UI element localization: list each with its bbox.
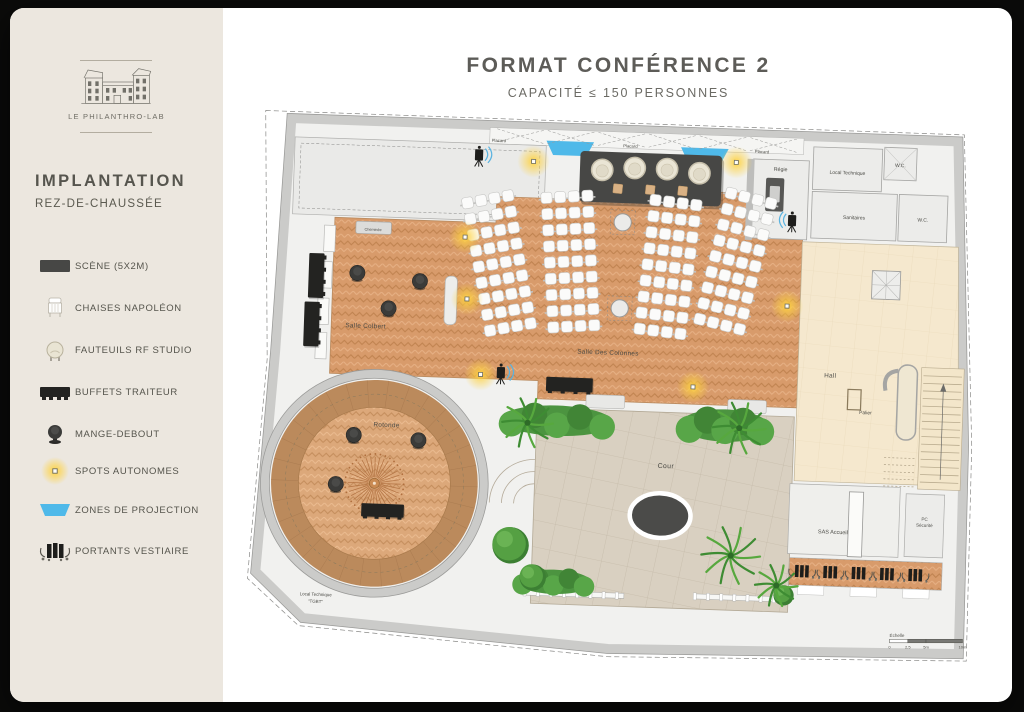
napoleon-chair: [569, 207, 581, 219]
sas-counter: [847, 492, 863, 557]
napoleon-chair: [709, 250, 723, 264]
napoleon-chair: [752, 244, 766, 258]
label-tgbt-2: "TGBT": [308, 599, 324, 605]
napoleon-chair: [665, 294, 677, 306]
napoleon-chair: [507, 221, 520, 234]
napoleon-chair: [585, 255, 597, 267]
napoleon-chair: [710, 300, 724, 314]
napoleon-chair: [720, 202, 734, 216]
napoleon-chair: [701, 281, 715, 295]
napoleon-chair-icon: [35, 294, 75, 322]
napoleon-chair: [489, 274, 502, 287]
napoleon-chair: [588, 303, 600, 315]
napoleon-chair: [693, 312, 707, 326]
napoleon-chair: [472, 260, 485, 273]
legend-item-chaises: CHAISES NAPOLÉON: [35, 294, 220, 322]
napoleon-chair: [724, 187, 738, 201]
napoleon-chair: [571, 239, 583, 251]
napoleon-chair: [651, 292, 663, 304]
napoleon-chair: [649, 194, 661, 206]
logo-building: [76, 64, 156, 108]
napoleon-chair: [645, 226, 657, 238]
napoleon-chair: [684, 247, 696, 259]
napoleon-chair: [745, 275, 759, 289]
napoleon-chair: [706, 316, 720, 330]
threshold: [586, 394, 625, 409]
napoleon-chair: [483, 242, 496, 255]
napoleon-chair: [546, 289, 558, 301]
legend-label: CHAISES NAPOLÉON: [75, 303, 182, 314]
napoleon-chair: [558, 256, 570, 268]
napoleon-chair: [488, 192, 501, 205]
napoleon-chair: [557, 240, 569, 252]
napoleon-chair: [705, 265, 719, 279]
napoleon-chair: [730, 221, 744, 235]
napoleon-chair: [676, 197, 688, 209]
napoleon-chair: [544, 257, 556, 269]
napoleon-chair: [571, 255, 583, 267]
napoleon-chair: [647, 324, 659, 336]
label-rotonde: Rotonde: [373, 421, 400, 429]
napoleon-chair: [545, 273, 557, 285]
napoleon-chair: [726, 237, 740, 251]
napoleon-chair: [653, 276, 665, 288]
legend-item-spots: SPOTS AUTONOMES: [35, 457, 220, 485]
stage-table: [645, 185, 655, 195]
napoleon-chair: [568, 191, 580, 203]
napoleon-chair: [735, 256, 749, 270]
napoleon-chair: [739, 240, 753, 254]
napoleon-chair: [714, 284, 728, 298]
label-wc-1: W.C.: [895, 163, 906, 169]
napoleon-chair: [588, 319, 600, 331]
napoleon-chair: [586, 271, 598, 283]
napoleon-chair: [475, 194, 488, 207]
label-sas-accueil: SAS Accueil: [818, 529, 848, 536]
napoleon-chair: [722, 253, 736, 267]
napoleon-chair: [491, 208, 504, 221]
napoleon-chair: [502, 271, 515, 284]
plan-title: FORMAT CONFÉRENCE 2: [223, 54, 1012, 78]
label-salle-colbert: Salle Colbert: [345, 322, 386, 330]
napoleon-chair: [547, 322, 559, 334]
napoleon-chair: [655, 260, 667, 272]
napoleon-chair: [661, 212, 673, 224]
plan-capacity: CAPACITÉ ≤ 150 PERSONNES: [223, 86, 1012, 100]
napoleon-chair: [663, 196, 675, 208]
napoleon-chair: [688, 215, 700, 227]
napoleon-chair: [484, 324, 497, 337]
label-cheminee: Cheminée: [364, 228, 381, 233]
label-placard-1: Placard: [492, 138, 507, 144]
napoleon-chair: [582, 206, 594, 218]
napoleon-chair: [494, 306, 507, 319]
studio-armchair: [591, 159, 613, 181]
legend-item-scene: SCÈNE (5X2M): [35, 252, 220, 280]
napoleon-chair: [543, 241, 555, 253]
napoleon-chair: [690, 199, 702, 211]
legend-item-portants: PORTANTS VESTIAIRE: [35, 537, 220, 565]
divider: [80, 132, 152, 133]
napoleon-chair: [749, 259, 763, 273]
napoleon-chair: [572, 272, 584, 284]
napoleon-chair: [513, 253, 526, 266]
napoleon-chair: [682, 263, 694, 275]
buffet-table: [308, 253, 327, 300]
scale-label: Échelle: [890, 632, 905, 638]
napoleon-chair: [747, 209, 761, 223]
napoleon-chair: [480, 226, 493, 239]
napoleon-chair: [554, 191, 566, 203]
label-sanitaires: Sanitaires: [843, 215, 866, 222]
cour-oval: [629, 492, 691, 539]
napoleon-chair: [555, 207, 567, 219]
napoleon-chair: [737, 307, 751, 321]
legend-item-buffets: BUFFETS TRAITEUR: [35, 378, 220, 406]
napoleon-chair: [461, 196, 474, 209]
legend-item-fauteuils: FAUTEUILS RF STUDIO: [35, 336, 220, 364]
napoleon-chair: [491, 290, 504, 303]
napoleon-chair: [674, 328, 686, 340]
napoleon-chair: [659, 228, 671, 240]
building: Salle Colbert Salle Des Colonnes Rotonde…: [245, 110, 985, 669]
napoleon-chair: [556, 224, 568, 236]
label-wc-2: W.C.: [917, 217, 928, 223]
napoleon-chair: [481, 308, 494, 321]
napoleon-chair: [649, 308, 661, 320]
napoleon-chair: [741, 291, 755, 305]
room-sas-accueil: [788, 484, 901, 558]
napoleon-chair: [521, 301, 534, 314]
label-pc-1: PC: [921, 517, 928, 522]
stair-rail: [896, 365, 918, 441]
napoleon-chair: [734, 206, 748, 220]
napoleon-chair: [635, 307, 647, 319]
napoleon-chair: [727, 288, 741, 302]
napoleon-chair: [723, 303, 737, 317]
buffet-icon: [35, 378, 75, 406]
scale-tick-1: 2,5: [905, 644, 911, 649]
napoleon-chair: [639, 274, 651, 286]
legend-label: BUFFETS TRAITEUR: [75, 387, 178, 398]
napoleon-chair: [516, 269, 529, 282]
napoleon-chair: [499, 256, 512, 269]
studio-armchair: [624, 157, 646, 179]
napoleon-chair: [731, 272, 745, 286]
napoleon-chair: [667, 278, 679, 290]
napoleon-chair: [575, 320, 587, 332]
page-title: IMPLANTATION: [35, 172, 186, 191]
label-cour: Cour: [657, 463, 674, 471]
napoleon-chair: [518, 285, 531, 298]
divider: [80, 60, 152, 61]
napoleon-chair: [524, 317, 537, 330]
spot-icon: [35, 457, 75, 485]
napoleon-chair: [494, 224, 507, 237]
napoleon-chair: [751, 193, 765, 207]
standing-table-icon: [35, 420, 75, 448]
napoleon-chair: [570, 223, 582, 235]
napoleon-chair: [669, 262, 681, 274]
napoleon-chair: [633, 323, 645, 335]
napoleon-chair: [733, 322, 747, 336]
napoleon-chair: [510, 237, 523, 250]
napoleon-chair: [678, 295, 690, 307]
napoleon-chair: [504, 205, 517, 218]
napoleon-chair: [764, 197, 778, 211]
napoleon-chair: [756, 228, 770, 242]
label-palier: Palier: [859, 410, 872, 416]
napoleon-chair: [477, 210, 490, 223]
napoleon-chair: [661, 326, 673, 338]
scale-tick-2: 5m: [923, 644, 929, 649]
coat-rack-icon: [35, 537, 75, 565]
legend-label: MANGE-DEBOUT: [75, 429, 160, 440]
napoleon-chair: [497, 322, 510, 335]
napoleon-chair: [508, 303, 521, 316]
napoleon-chair: [502, 189, 515, 202]
napoleon-chair: [559, 288, 571, 300]
legend-item-mange-debout: MANGE-DEBOUT: [35, 420, 220, 448]
page-subtitle: REZ-DE-CHAUSSÉE: [35, 198, 163, 210]
napoleon-chair: [505, 287, 518, 300]
napoleon-chair: [584, 238, 596, 250]
napoleon-chair: [561, 321, 573, 333]
napoleon-chair: [541, 208, 553, 220]
armchair-icon: [35, 336, 75, 364]
napoleon-chair: [573, 288, 585, 300]
legend-label: ZONES DE PROJECTION: [75, 505, 199, 516]
napoleon-chair: [547, 305, 559, 317]
napoleon-chair: [583, 222, 595, 234]
stage-icon: [35, 252, 75, 280]
napoleon-chair: [671, 246, 683, 258]
label-local-technique: Local Technique: [829, 170, 865, 177]
napoleon-chair: [672, 229, 684, 241]
legend-label: SPOTS AUTONOMES: [75, 466, 179, 477]
buffet-table: [361, 503, 405, 520]
napoleon-chair: [674, 213, 686, 225]
stage-table: [613, 184, 623, 194]
napoleon-chair: [676, 312, 688, 324]
buffet-table: [303, 301, 322, 348]
napoleon-chair: [582, 190, 594, 202]
napoleon-chair: [637, 290, 649, 302]
napoleon-chair: [718, 269, 732, 283]
label-pc-2: Sécurité: [916, 523, 933, 529]
studio-armchair: [688, 162, 710, 184]
buffet-table: [546, 377, 594, 395]
napoleon-chair: [511, 319, 524, 332]
napoleon-chair: [738, 190, 752, 204]
napoleon-chair: [559, 272, 571, 284]
projection-icon: [35, 496, 75, 524]
sidebar: LE PHILANTHRO-LAB IMPLANTATION REZ-DE-CH…: [10, 8, 223, 702]
stage-table: [678, 186, 688, 196]
scale-tick-3: 10m: [959, 644, 968, 649]
legend-label: PORTANTS VESTIAIRE: [75, 546, 189, 557]
label-hall: Hall: [824, 372, 836, 379]
label-placard-2: Placard: [623, 143, 638, 149]
napoleon-chair: [720, 319, 734, 333]
studio-armchair: [656, 158, 678, 180]
napoleon-chair: [542, 224, 554, 236]
label-placard-3: Placard: [755, 149, 770, 155]
napoleon-chair: [686, 231, 698, 243]
napoleon-chair: [717, 218, 731, 232]
legend-label: FAUTEUILS RF STUDIO: [75, 345, 192, 356]
napoleon-chair: [560, 305, 572, 317]
room-local-technique: [812, 147, 882, 192]
legend-item-projection: ZONES DE PROJECTION: [35, 496, 220, 524]
slide-card: LE PHILANTHRO-LAB IMPLANTATION REZ-DE-CH…: [10, 8, 1012, 702]
legend-label: SCÈNE (5X2M): [75, 261, 149, 272]
napoleon-chair: [587, 287, 599, 299]
label-regie: Régie: [774, 167, 788, 173]
napoleon-chair: [541, 192, 553, 204]
napoleon-chair: [713, 234, 727, 248]
napoleon-chair: [657, 244, 669, 256]
napoleon-chair: [743, 225, 757, 239]
napoleon-chair: [663, 310, 675, 322]
napoleon-chair: [760, 212, 774, 226]
napoleon-chair: [574, 304, 586, 316]
napoleon-chair: [647, 210, 659, 222]
brand-name: LE PHILANTHRO-LAB: [10, 112, 223, 121]
napoleon-chair: [641, 258, 653, 270]
napoleon-chair: [643, 242, 655, 254]
napoleon-chair: [697, 297, 711, 311]
napoleon-chair: [486, 258, 499, 271]
napoleon-chair: [497, 240, 510, 253]
floor-plan: Salle Colbert Salle Des Colonnes Rotonde…: [230, 100, 1002, 677]
napoleon-chair: [680, 279, 692, 291]
